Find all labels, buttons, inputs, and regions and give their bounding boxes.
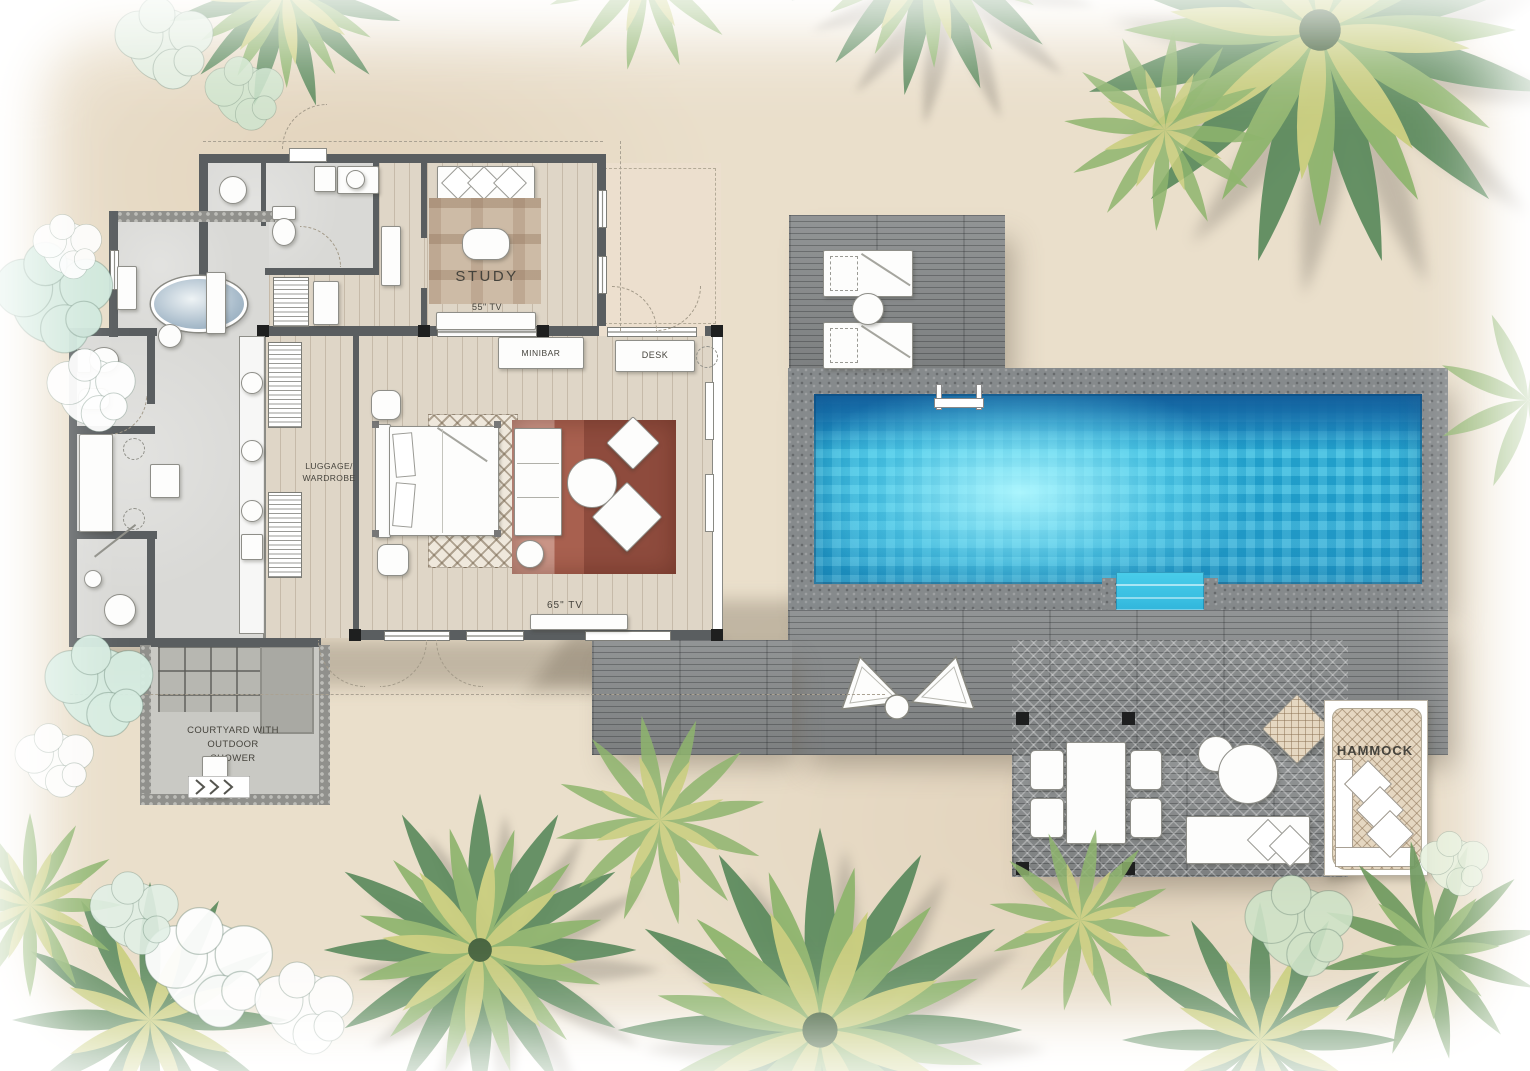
courtyard-wall-west — [140, 645, 151, 805]
sun-lounger — [823, 250, 913, 297]
dressing-desk — [79, 434, 113, 532]
desk-chair — [696, 346, 718, 368]
wall-north — [199, 154, 603, 163]
sun-lounger — [823, 322, 913, 369]
floor-plan-canvas: HAMMOCK — [0, 0, 1530, 1071]
column — [711, 325, 723, 337]
bath-stool — [158, 324, 182, 348]
pool-step-line — [1116, 584, 1204, 586]
pool-ladder — [934, 384, 984, 408]
bedroom-south-door — [585, 631, 671, 641]
study-label: STUDY — [437, 266, 537, 288]
wall-study-east — [597, 154, 606, 336]
wc-toilet — [89, 347, 119, 373]
hammock-bar — [1335, 847, 1415, 867]
courtyard-slabs — [260, 646, 314, 734]
lounger-headrest — [830, 256, 858, 291]
pool — [814, 394, 1422, 584]
sliding-door — [705, 474, 714, 532]
outdoor-sofa — [1186, 816, 1310, 864]
column — [537, 325, 549, 337]
bedside-table — [371, 390, 401, 420]
daybed-pillow — [493, 166, 527, 200]
wall-west-outer — [69, 328, 77, 647]
wall-shower-east — [147, 531, 155, 645]
wall-wc-east — [147, 328, 155, 404]
column — [711, 629, 723, 641]
vanity-basin — [241, 534, 263, 560]
living-tv-label: 65" TV — [505, 599, 625, 614]
round-daybed — [1218, 744, 1278, 804]
dressing-table — [150, 464, 180, 498]
property-line — [70, 694, 885, 695]
shower-head — [84, 570, 102, 588]
duvet-fold — [437, 427, 488, 462]
dining-chair — [1030, 750, 1064, 790]
lounger-line — [861, 325, 910, 358]
wall-foyer-study — [421, 158, 427, 238]
wall-south-west — [69, 638, 321, 647]
wall-wc-north — [69, 328, 157, 336]
vanity-sink — [241, 440, 263, 462]
closet-bench — [313, 281, 339, 325]
dressing-stool — [123, 438, 145, 460]
pergola-post — [1016, 862, 1029, 875]
dining-table — [1066, 742, 1126, 844]
utility-fixture — [219, 176, 247, 204]
study-window — [598, 256, 607, 294]
pergola-post — [1016, 712, 1029, 725]
bath-bench — [117, 266, 137, 310]
pergola-post — [1122, 712, 1135, 725]
bed-post — [494, 530, 501, 537]
bed-post — [372, 530, 379, 537]
guest-basin — [314, 166, 336, 192]
bed-center-line — [442, 429, 443, 533]
pergola-post — [1122, 862, 1135, 875]
pool-step-line — [1116, 597, 1204, 599]
sofa-cushion-line — [517, 497, 559, 498]
courtyard-label: COURTYARD WITH OUTDOOR SHOWER — [153, 724, 313, 765]
hammock-label: HAMMOCK — [1330, 742, 1420, 761]
triangle-chairs — [830, 645, 990, 725]
wc-bidet — [78, 388, 110, 410]
bed-pillow — [392, 482, 416, 528]
dining-chair — [1130, 798, 1162, 838]
bed-post — [494, 421, 501, 428]
deck-west — [592, 640, 792, 755]
vanity-sink — [241, 372, 263, 394]
minibar: MINIBAR — [498, 337, 584, 369]
roof-line-north — [203, 141, 603, 142]
living-tv-console — [530, 614, 628, 630]
courtyard-steps — [188, 776, 250, 798]
study-coffee-table — [462, 228, 510, 260]
floor-lamp — [516, 540, 544, 568]
bed-post — [372, 421, 379, 428]
sliding-door — [705, 382, 714, 440]
bedside-table — [377, 544, 409, 576]
desk-label: DESK — [642, 349, 669, 362]
guest-sink — [346, 170, 365, 189]
wardrobe-rack — [268, 492, 302, 578]
bed-pillow — [392, 432, 416, 478]
study-window — [598, 190, 607, 228]
vanity-sink — [241, 500, 263, 522]
wall-closet-north — [265, 268, 379, 275]
wardrobe-rack — [268, 342, 302, 428]
minibar-label: MINIBAR — [522, 347, 561, 359]
bed — [389, 426, 499, 536]
lounger-headrest — [830, 328, 858, 363]
entry-door — [289, 148, 327, 162]
foyer-cabinet — [381, 226, 401, 286]
lounger-line — [861, 253, 910, 286]
courtyard-tiles — [158, 646, 260, 712]
hammock-frame — [1324, 700, 1428, 876]
desk: DESK — [615, 340, 695, 372]
column — [418, 325, 430, 337]
living-sofa — [514, 428, 562, 536]
wardrobe-label: LUGGAGE/ WARDROBE — [296, 460, 362, 485]
dining-chair — [1130, 750, 1162, 790]
ladder-step — [934, 398, 984, 408]
shower-drain — [104, 594, 136, 626]
sofa-cushion-line — [517, 463, 559, 464]
luggage-rack — [273, 277, 309, 327]
wall-shower-north — [69, 531, 157, 539]
side-table — [852, 293, 884, 325]
roof-line-east — [620, 141, 621, 331]
tub-ledge — [206, 272, 226, 334]
dining-chair — [1030, 798, 1064, 838]
study-tv-console — [436, 312, 536, 330]
wall-bath-pebble — [109, 211, 275, 222]
guest-toilet — [272, 218, 296, 246]
